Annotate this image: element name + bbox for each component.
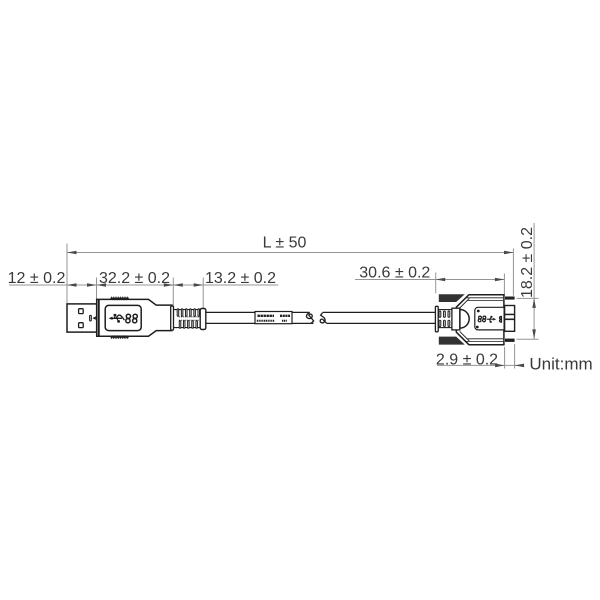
- svg-text:L ± 50: L ± 50: [263, 235, 307, 252]
- svg-text:2.9 ± 0.2: 2.9 ± 0.2: [436, 352, 498, 369]
- svg-text:32.2 ± 0.2: 32.2 ± 0.2: [99, 270, 170, 287]
- svg-text:18.2 ± 0.2: 18.2 ± 0.2: [519, 227, 536, 298]
- svg-text:Unit:mm: Unit:mm: [529, 355, 592, 374]
- svg-text:13.2 ± 0.2: 13.2 ± 0.2: [205, 270, 276, 287]
- svg-text:12 ± 0.2: 12 ± 0.2: [8, 270, 66, 287]
- svg-text:30.6 ± 0.2: 30.6 ± 0.2: [359, 265, 430, 282]
